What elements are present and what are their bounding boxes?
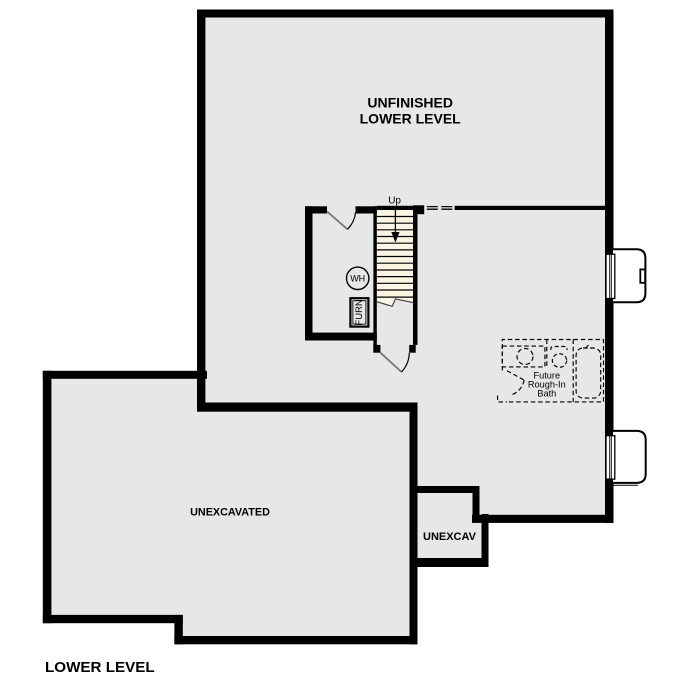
svg-text:Up: Up	[388, 196, 401, 207]
svg-text:LOWER LEVEL: LOWER LEVEL	[360, 111, 462, 127]
svg-text:UNFINISHED: UNFINISHED	[367, 95, 453, 111]
svg-text:FURN: FURN	[354, 299, 365, 326]
svg-text:LOWER LEVEL: LOWER LEVEL	[45, 659, 155, 676]
svg-text:UNEXCAVATED: UNEXCAVATED	[190, 507, 270, 519]
svg-text:Bath: Bath	[537, 389, 556, 399]
svg-text:UNEXCAV: UNEXCAV	[423, 531, 477, 543]
svg-text:WH: WH	[350, 274, 365, 284]
